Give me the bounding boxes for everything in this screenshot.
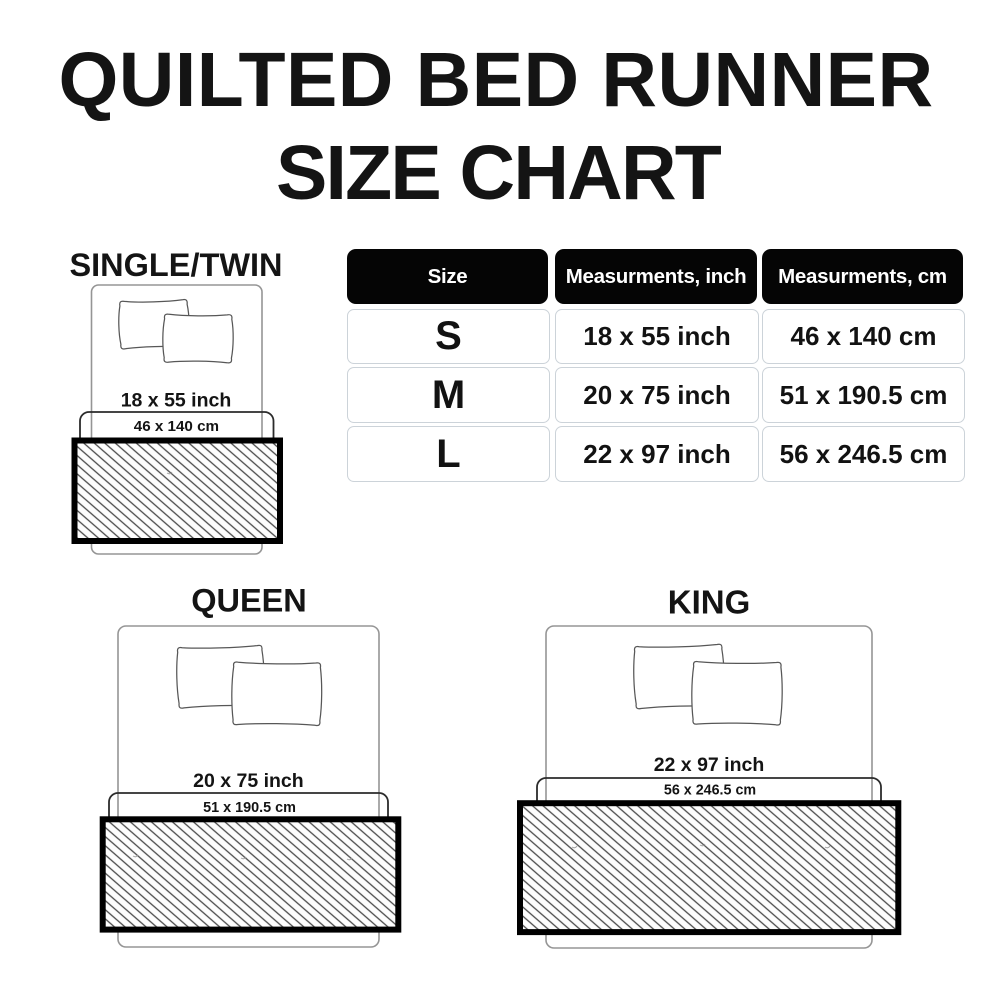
svg-text:46 x 140 cm: 46 x 140 cm [134, 418, 219, 435]
svg-text:KING: KING [668, 584, 751, 621]
svg-text:56 x 246.5 cm: 56 x 246.5 cm [664, 783, 756, 799]
svg-text:QUEEN: QUEEN [191, 583, 307, 619]
svg-text:22 x 97 inch: 22 x 97 inch [654, 754, 765, 776]
svg-text:18 x 55 inch: 18 x 55 inch [121, 390, 232, 412]
svg-text:SINGLE/TWIN: SINGLE/TWIN [69, 247, 282, 283]
svg-text:51 x 190.5 cm: 51 x 190.5 cm [203, 800, 296, 816]
svg-text:20 x 75 inch: 20 x 75 inch [193, 770, 304, 792]
